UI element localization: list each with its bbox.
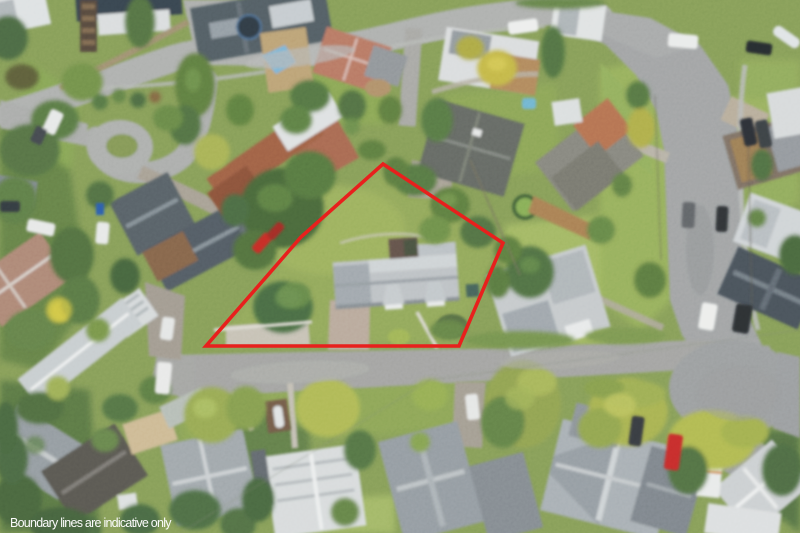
svg-text:Boundary lines are indicative: Boundary lines are indicative only — [10, 516, 172, 530]
